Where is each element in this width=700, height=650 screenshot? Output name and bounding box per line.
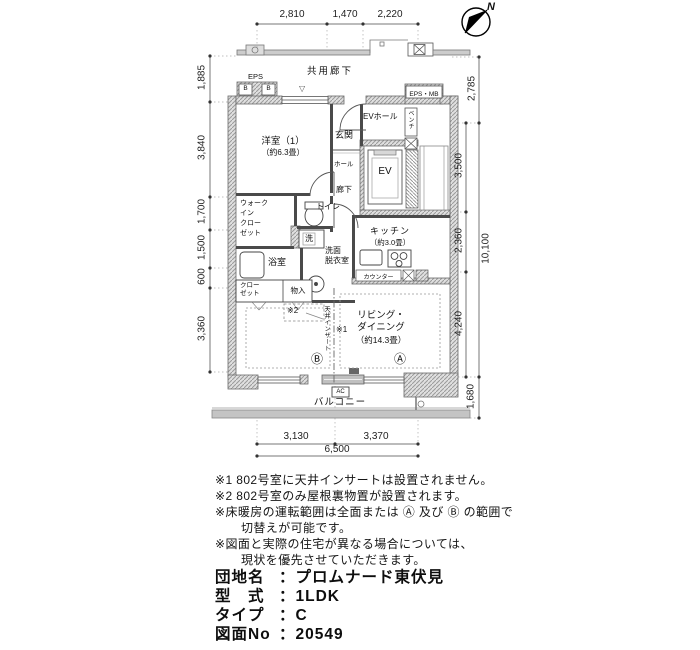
living-line2: ダイニング <box>350 322 412 334</box>
title-row-danchi: 団地名：プロムナード東伏見 <box>215 568 545 587</box>
dim-right-total: 10,100 <box>481 229 492 269</box>
title-sep-4: ： <box>279 626 296 643</box>
title-row-zumen: 図面No：20549 <box>215 625 545 644</box>
eps-label: EPS <box>248 72 263 81</box>
dim-right-4: 4,240 <box>454 304 465 344</box>
title-label-taipu: タイプ <box>215 606 279 625</box>
note-line-1: ※1 802号室に天井インサートは設置されません。 <box>215 472 545 488</box>
yoshitsu-size: （約6.3畳） <box>251 147 315 158</box>
living-size: （約14.3畳） <box>350 334 412 346</box>
counter-label: カウンター <box>356 272 401 281</box>
senmen-line1: 洗面 <box>325 246 349 256</box>
toilet-label: トイレ <box>316 201 340 212</box>
ceiling-insert-label: 天井インサート <box>322 306 331 358</box>
dim-right-2: 3,500 <box>454 146 465 186</box>
bath-label: 浴室 <box>268 255 286 268</box>
wic-line1: ウォーク <box>240 199 268 209</box>
title-block: 団地名：プロムナード東伏見 型 式：1LDK タイプ：C 図面No：20549 <box>215 568 545 644</box>
note-line-5: ※図面と実際の住宅が異なる場合については、 <box>215 536 545 552</box>
dim-left-6: 3,360 <box>197 309 208 349</box>
laundry-label: 洗 <box>305 233 313 244</box>
title-value-danchi: プロムナード東伏見 <box>296 569 445 586</box>
title-row-type: 型 式：1LDK <box>215 587 545 606</box>
title-value-type: 1LDK <box>296 588 340 605</box>
living-label: リビング・ ダイニング （約14.3畳） <box>350 310 412 346</box>
zone-a-marker: Ⓐ <box>394 350 406 367</box>
ev-hall-label: EVホール <box>363 111 398 122</box>
senmen-label: 洗面 脱衣室 <box>325 246 349 266</box>
note-line-3: ※床暖房の運転範囲は全面または Ⓐ 及び Ⓑ の範囲で <box>215 504 545 520</box>
dim-right-3: 2,360 <box>454 221 465 261</box>
living-line1: リビング・ <box>350 310 412 322</box>
storage-label: 物入 <box>285 285 311 296</box>
title-label-danchi: 団地名 <box>215 568 279 587</box>
yoshitsu-name: 洋室（1） <box>251 133 315 147</box>
wic-label: ウォーク イン クロー ゼット <box>240 199 268 239</box>
title-value-zumen: 20549 <box>296 626 344 643</box>
eps-mb-label: EPS・MB <box>406 88 442 98</box>
title-value-taipu: C <box>296 607 308 624</box>
closet-line2: ゼット <box>240 290 260 298</box>
kitchen-name: キッチン <box>360 224 420 237</box>
dim-bottom-2: 3,370 <box>356 431 396 442</box>
title-row-taipu: タイプ：C <box>215 606 545 625</box>
dim-top-3: 2,220 <box>368 9 412 20</box>
dim-left-1: 1,885 <box>197 58 208 98</box>
balcony-label: バルコニー <box>308 394 372 408</box>
closet-line1: クロー <box>240 282 260 290</box>
common-corridor-label: 共用廊下 <box>298 63 362 77</box>
dim-bottom-total: 6,500 <box>317 444 357 455</box>
yoshitsu-room-label: 洋室（1） （約6.3畳） <box>251 133 315 158</box>
wic-line4: ゼット <box>240 229 268 239</box>
ref1-marker: ※1 <box>336 325 347 334</box>
closet-label: クロー ゼット <box>240 282 260 298</box>
kitchen-size: （約3.0畳） <box>360 237 420 248</box>
rouka-label: 廊下 <box>336 184 352 195</box>
dim-left-3: 1,700 <box>197 192 208 232</box>
kitchen-label: キッチン （約3.0畳） <box>360 224 420 248</box>
note-line-2: ※2 802号室のみ屋根裏物置が設置されます。 <box>215 488 545 504</box>
dim-left-5: 600 <box>197 257 208 297</box>
dim-top-1: 2,810 <box>267 9 317 20</box>
north-compass-icon <box>462 8 490 36</box>
window-marker: ▽ <box>299 84 305 93</box>
floor-plan-page: N 2,810 1,470 2,220 1,885 3,840 1,700 1,… <box>0 0 700 650</box>
zone-b-marker: Ⓑ <box>311 350 323 367</box>
dim-right-5: 1,680 <box>466 377 477 417</box>
north-label: N <box>487 1 495 13</box>
genkan-label: 玄関 <box>335 128 353 141</box>
title-sep-3: ： <box>279 607 296 624</box>
bench-label: ベンチ <box>406 110 415 136</box>
common-corridor-structures <box>237 40 470 56</box>
eps-b1-label: B <box>239 85 252 92</box>
notes-block: ※1 802号室に天井インサートは設置されません。 ※2 802号室のみ屋根裏物… <box>215 472 545 568</box>
ref2-marker: ※2 <box>287 306 298 315</box>
note-line-6: 現状を優先させていただきます。 <box>241 552 545 568</box>
senmen-line2: 脱衣室 <box>325 256 349 266</box>
note-line-4: 切替えが可能です。 <box>241 520 545 536</box>
wic-line3: クロー <box>240 219 268 229</box>
ev-label: EV <box>373 166 397 177</box>
title-sep-2: ： <box>279 588 296 605</box>
wic-line2: イン <box>240 209 268 219</box>
dim-left-2: 3,840 <box>197 128 208 168</box>
hall-label: ホール <box>334 158 354 168</box>
dim-top-2: 1,470 <box>325 9 365 20</box>
title-label-type: 型 式 <box>215 587 279 606</box>
ac-label: AC <box>332 389 349 395</box>
dim-bottom-1: 3,130 <box>276 431 316 442</box>
title-label-zumen: 図面No <box>215 625 279 644</box>
title-sep-1: ： <box>279 569 296 586</box>
eps-b2-label: B <box>262 85 275 92</box>
dim-right-1: 2,785 <box>467 69 478 109</box>
